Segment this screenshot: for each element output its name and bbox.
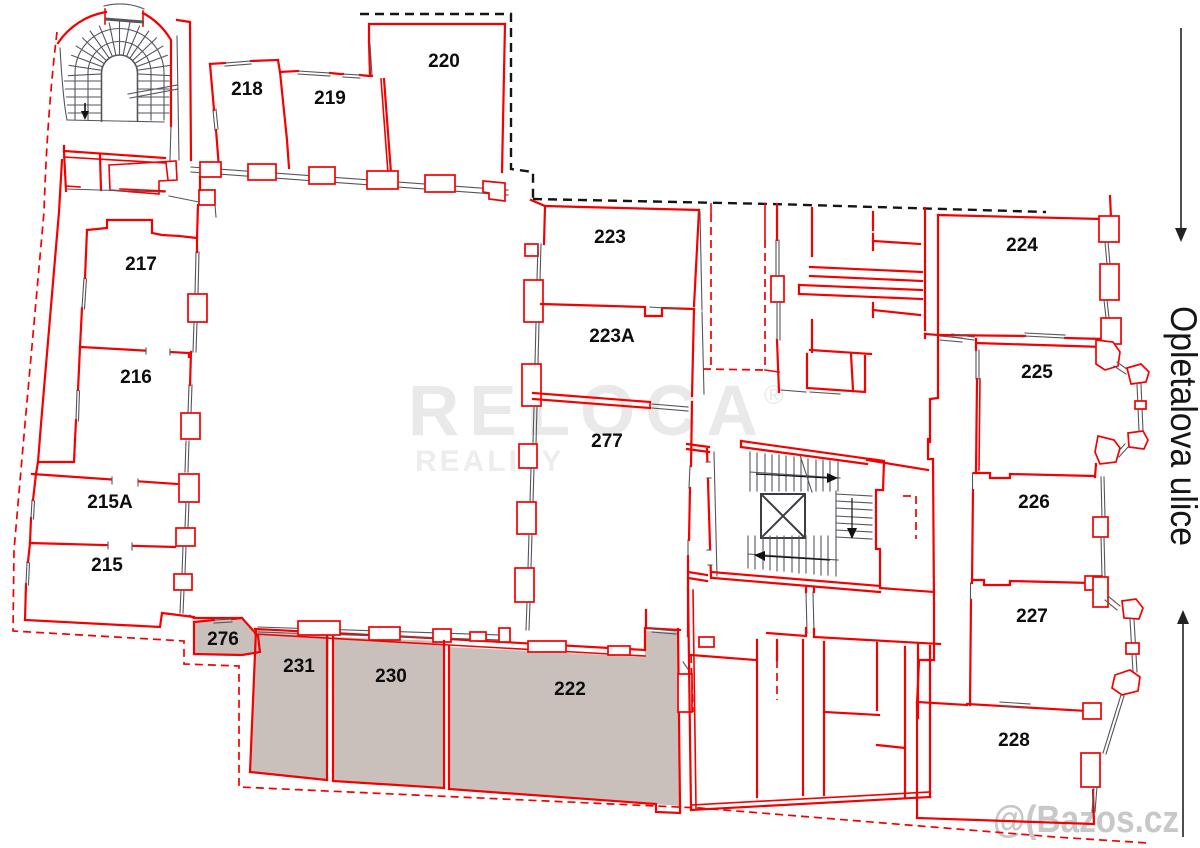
svg-text:276: 276 (207, 629, 239, 650)
svg-text:REALITY: REALITY (415, 445, 564, 478)
svg-text:215A: 215A (87, 492, 133, 513)
svg-text:223A: 223A (589, 326, 635, 347)
svg-text:231: 231 (283, 656, 315, 677)
svg-text:230: 230 (375, 666, 407, 687)
svg-text:225: 225 (1021, 362, 1053, 383)
svg-text:226: 226 (1018, 492, 1050, 513)
svg-text:220: 220 (428, 51, 460, 72)
svg-text:Opletalova ulice: Opletalova ulice (1163, 306, 1200, 546)
svg-text:®: ® (764, 380, 784, 410)
svg-text:223: 223 (594, 227, 626, 248)
svg-text:218: 218 (231, 79, 263, 100)
svg-text:215: 215 (91, 555, 123, 576)
svg-text:@(Bazos.cz: @(Bazos.cz (993, 799, 1179, 841)
svg-text:277: 277 (591, 431, 623, 452)
svg-text:227: 227 (1016, 606, 1048, 627)
svg-text:224: 224 (1006, 235, 1038, 256)
svg-text:222: 222 (554, 679, 586, 700)
svg-text:219: 219 (314, 88, 346, 109)
svg-text:217: 217 (125, 254, 157, 275)
svg-text:216: 216 (120, 367, 152, 388)
svg-text:228: 228 (998, 730, 1030, 751)
svg-text:RELOCA: RELOCA (408, 372, 768, 451)
